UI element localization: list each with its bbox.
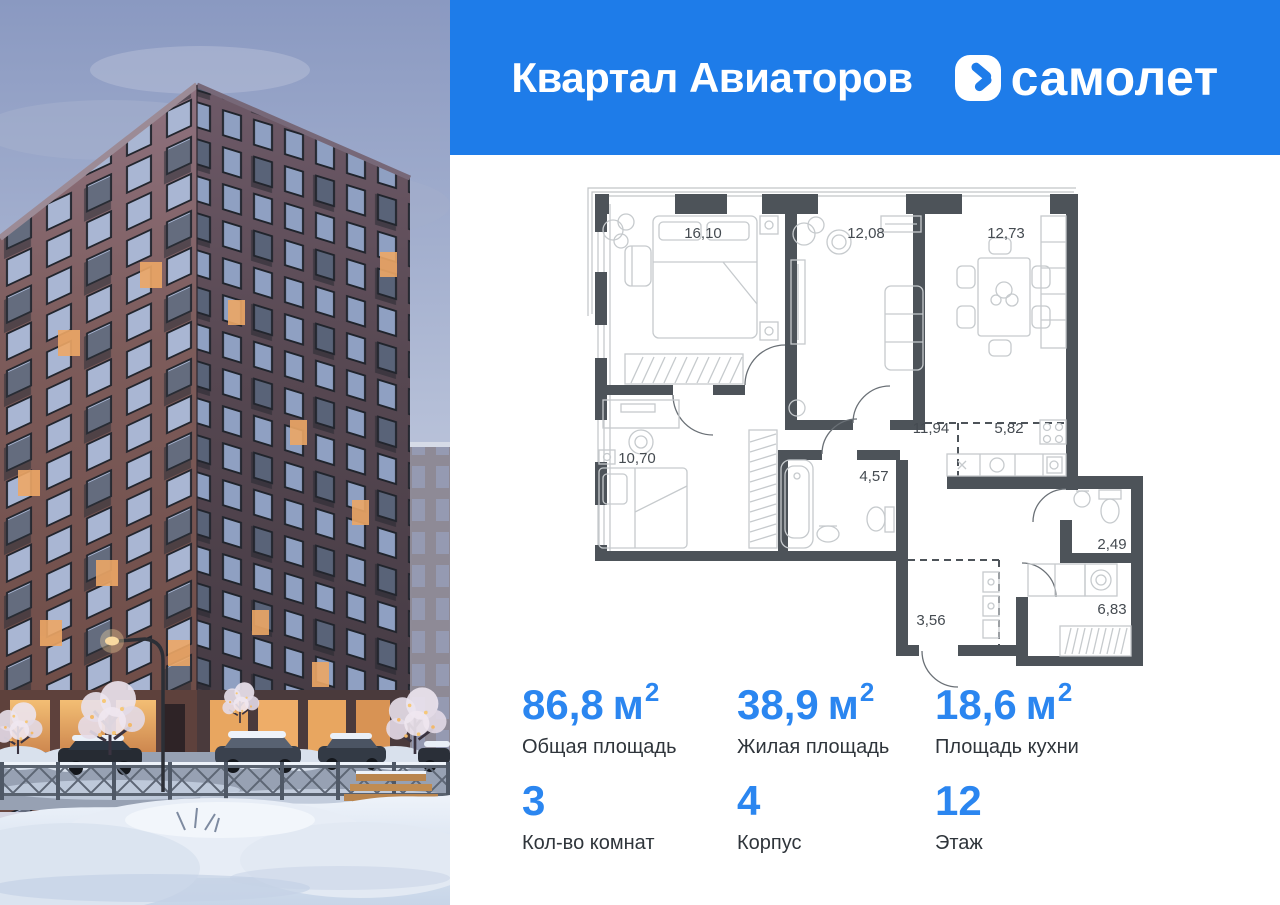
stat-kitchen-area: 18,6м2 Площадь кухни xyxy=(935,672,1079,758)
room-area-label: 6,83 xyxy=(1097,601,1126,618)
building-photo xyxy=(0,0,450,905)
room-area-label: 11,94 xyxy=(913,420,949,437)
stat-value: 4 xyxy=(737,778,802,824)
samolet-logo-icon xyxy=(955,55,1001,101)
stat-value: 18,6м2 xyxy=(935,672,1079,728)
room-area-label: 5,82 xyxy=(994,420,1023,437)
room-area-label: 16,10 xyxy=(684,225,722,242)
room-area-label: 10,70 xyxy=(618,450,656,467)
stat-value: 3 xyxy=(522,778,654,824)
stat-label: Жилая площадь xyxy=(737,736,889,758)
stat-value: 38,9м2 xyxy=(737,672,889,728)
stat-value: 86,8м2 xyxy=(522,672,677,728)
listing-card: Квартал Авиаторов самолет xyxy=(0,0,1280,905)
stat-label: Этаж xyxy=(935,832,983,854)
room-area-label: 2,49 xyxy=(1097,536,1126,553)
stat-total-area: 86,8м2 Общая площадь xyxy=(522,672,677,758)
stat-label: Общая площадь xyxy=(522,736,677,758)
stat-rooms-count: 3 Кол-во комнат xyxy=(522,778,654,854)
stat-label: Кол-во комнат xyxy=(522,832,654,854)
door-arcs xyxy=(673,345,1066,687)
snow-foreground xyxy=(0,795,450,905)
stat-label: Площадь кухни xyxy=(935,736,1079,758)
room-area-label: 4,57 xyxy=(859,468,888,485)
furniture xyxy=(599,214,1131,656)
project-title: Квартал Авиаторов xyxy=(511,54,912,102)
stat-floor-number: 12 Этаж xyxy=(935,778,983,854)
stat-building-number: 4 Корпус xyxy=(737,778,802,854)
samolet-logo: самолет xyxy=(955,53,1219,103)
floor-plan: 16,10 12,08 12,73 11,94 5,82 10,70 4,57 … xyxy=(585,182,1165,694)
room-area-label: 3,56 xyxy=(916,612,945,629)
stat-label: Корпус xyxy=(737,832,802,854)
main-tower xyxy=(0,85,410,812)
room-area-label: 12,08 xyxy=(847,225,885,242)
header: Квартал Авиаторов самолет xyxy=(450,0,1280,155)
room-area-label: 12,73 xyxy=(987,225,1025,242)
brand-name: самолет xyxy=(1011,53,1219,103)
stat-living-area: 38,9м2 Жилая площадь xyxy=(737,672,889,758)
stat-value: 12 xyxy=(935,778,983,824)
